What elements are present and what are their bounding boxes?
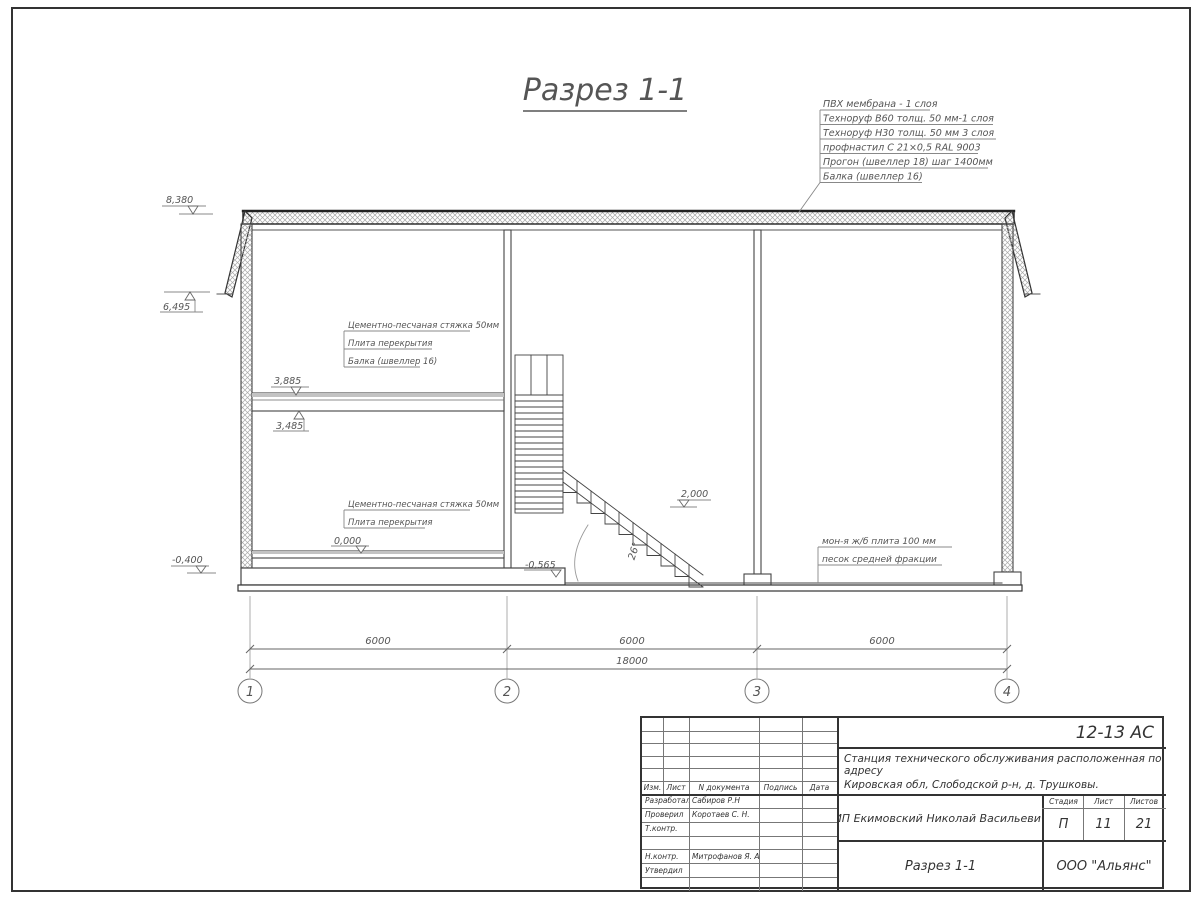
sig-role: Утвердил — [642, 863, 689, 877]
drawing-sheet: Разрез 1-1 — [0, 0, 1200, 900]
sig-name: Сабиров Р.Н — [689, 794, 759, 808]
axis-1-label: 1 — [246, 685, 254, 700]
svg-text:-0,400: -0,400 — [172, 555, 203, 566]
sig-name: Коротаев С. Н. — [689, 808, 759, 822]
axis-3-label: 3 — [753, 685, 761, 700]
roof-callout-line: Техноруф Н30 толщ. 50 мм 3 слоя — [823, 128, 994, 139]
doc-code: 12-13 АС — [837, 718, 1166, 747]
ground-callout-line: песок средней фракции — [822, 555, 937, 565]
sig-name: Митрофанов Я. А. — [689, 849, 759, 863]
floor0-slab — [252, 551, 504, 558]
floor2-callout-line: Цементно-песчаная стяжка 50мм — [348, 321, 500, 331]
dim-total: 18000 — [616, 656, 648, 667]
drawing-title: Разрез 1-1 — [839, 842, 1042, 891]
roof-callout-line: профнастил С 21×0,5 RAL 9003 — [823, 143, 981, 154]
floor1-callout: Цементно-песчаная стяжка 50мм Плита пере… — [344, 500, 500, 528]
sig-role — [642, 877, 689, 891]
svg-text:2,000: 2,000 — [681, 489, 708, 500]
stair-angle-label: 26° — [627, 541, 643, 561]
left-wall — [241, 224, 252, 568]
view-title-text: Разрез 1-1 — [523, 73, 687, 108]
floor2-callout-line: Плита перекрытия — [348, 339, 432, 349]
stair-lower-flight — [563, 470, 703, 587]
col-sign: Подпись — [759, 781, 802, 794]
ground-callout: мон-я ж/б плита 100 мм песок средней фра… — [818, 537, 952, 583]
dim-span-3: 6000 — [869, 636, 894, 647]
floor2-callout-line: Балка (швеллер 16) — [348, 357, 437, 367]
sig-role: Н.контр. — [642, 849, 689, 863]
dim-span-1: 6000 — [365, 636, 390, 647]
company-name: ООО "Альянс" — [1044, 842, 1164, 891]
sig-role: Т.контр. — [642, 822, 689, 836]
sheets-label: Листов — [1124, 794, 1164, 808]
roof-callout: ПВХ мембрана - 1 слоя Техноруф В60 толщ.… — [799, 99, 996, 212]
elevation-slab2-bottom: 3,485 — [273, 411, 309, 432]
stage-value: П — [1044, 808, 1083, 840]
right-wall — [1002, 224, 1013, 572]
svg-text:6,495: 6,495 — [163, 302, 190, 313]
elevation-slab2-top: 3,885 — [271, 376, 309, 395]
sheet-number: 11 — [1083, 808, 1124, 840]
floor1-callout-line: Плита перекрытия — [348, 518, 432, 528]
roof-callout-line: ПВХ мембрана - 1 слоя — [823, 99, 938, 110]
sig-role: Проверил — [642, 808, 689, 822]
ground-callout-line: мон-я ж/б плита 100 мм — [822, 537, 936, 547]
col-ndoc: N документа — [689, 781, 759, 794]
floor2-slab — [252, 393, 504, 411]
sig-name — [689, 836, 759, 850]
dim-span-2: 6000 — [619, 636, 644, 647]
roof-slab — [243, 211, 1014, 230]
col-date: Дата — [802, 781, 837, 794]
roof-callout-line: Прогон (швеллер 18) шаг 1400мм — [823, 157, 993, 168]
column-axis2 — [504, 230, 511, 568]
elevation-eaves: 6,495 — [160, 292, 210, 313]
axis-2-label: 2 — [503, 685, 511, 700]
plinth-band — [241, 568, 565, 585]
svg-text:3,885: 3,885 — [274, 376, 301, 387]
project-name: Станция технического обслуживания распол… — [839, 749, 1169, 794]
title-block: Изм. Лист N документа Подпись Дата Разра… — [640, 716, 1164, 889]
svg-text:3,485: 3,485 — [276, 421, 303, 432]
svg-text:-0,565: -0,565 — [525, 560, 556, 571]
sig-name — [689, 877, 759, 891]
view-title: Разрез 1-1 — [523, 73, 687, 111]
roof-callout-line: Балка (швеллер 16) — [823, 172, 923, 183]
axis-bubbles: 1 2 3 4 — [238, 679, 1019, 703]
sig-role: Разработал — [642, 794, 689, 808]
svg-text:0,000: 0,000 — [334, 536, 361, 547]
elevation-landing: 2,000 — [670, 489, 711, 507]
elevation-grade: -0,400 — [171, 555, 216, 573]
floor1-callout-line: Цементно-песчаная стяжка 50мм — [348, 500, 500, 510]
project-name-line1: Станция технического обслуживания распол… — [844, 753, 1169, 777]
sig-name — [689, 822, 759, 836]
stair-upper-flight — [515, 355, 563, 513]
column-axis3 — [754, 230, 761, 574]
stair-angle: 26° — [575, 525, 643, 581]
project-name-line2: Кировская обл, Слободской р-н, д. Трушко… — [844, 779, 1169, 791]
sheet-count: 21 — [1124, 808, 1164, 840]
sig-name — [689, 863, 759, 877]
foundation-strip — [238, 585, 1022, 591]
col-izm: Изм. — [642, 781, 663, 794]
roof-callout-line: Техноруф В60 толщ. 50 мм-1 слоя — [823, 114, 994, 125]
svg-text:8,380: 8,380 — [166, 195, 193, 206]
building-section: 26° — [217, 211, 1040, 591]
elevation-roof: 8,380 — [162, 195, 213, 214]
sig-role — [642, 836, 689, 850]
lower-floor — [565, 568, 1002, 583]
sheet-label: Лист — [1083, 794, 1124, 808]
axis-4-label: 4 — [1003, 685, 1011, 700]
client-name: ИП Екимовский Николай Васильевич — [839, 796, 1042, 840]
dimension-lines: 6000 6000 6000 18000 — [246, 596, 1011, 678]
col-list: Лист — [663, 781, 689, 794]
stage-label: Стадия — [1044, 794, 1083, 808]
floor2-callout: Цементно-песчаная стяжка 50мм Плита пере… — [344, 321, 500, 367]
